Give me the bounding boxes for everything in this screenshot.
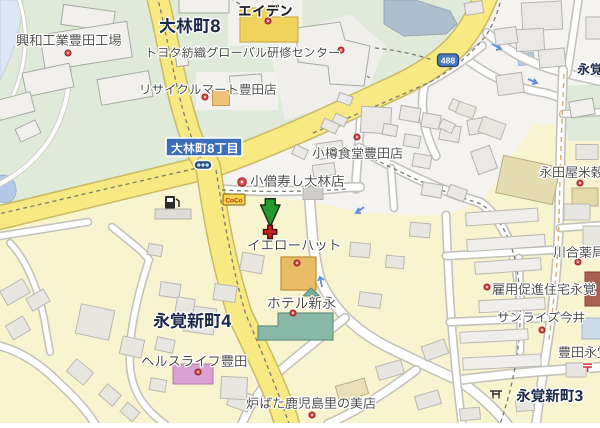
svg-text:488: 488 bbox=[441, 55, 455, 65]
svg-text:CoCo: CoCo bbox=[225, 198, 242, 205]
